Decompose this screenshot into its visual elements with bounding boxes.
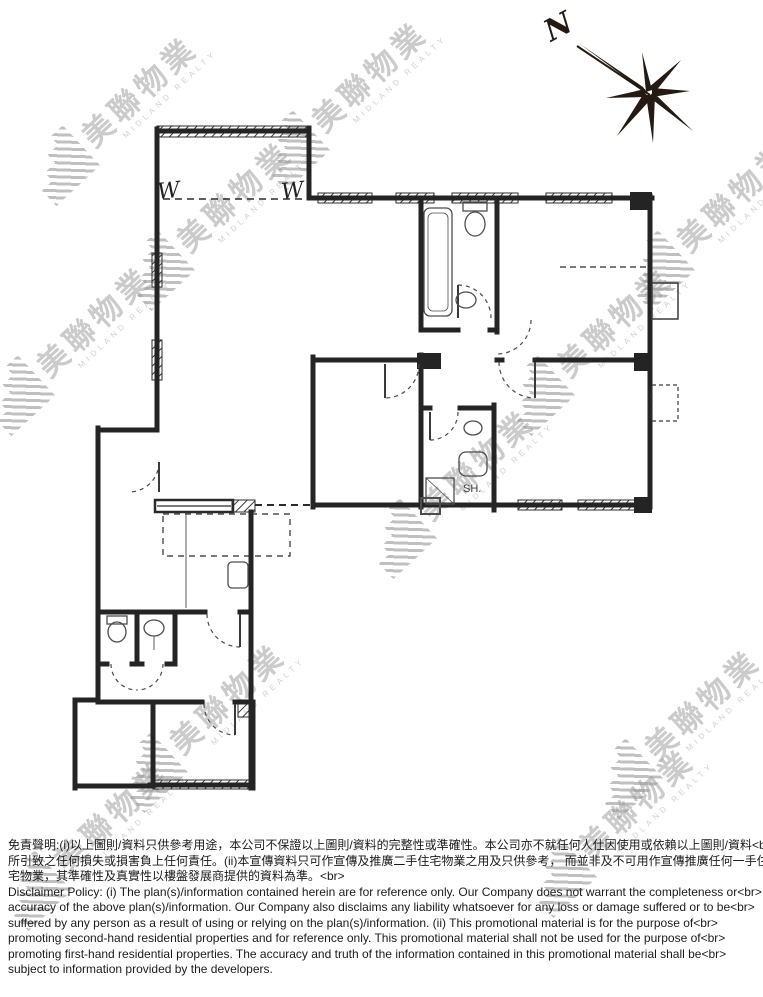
- bathtub-inner: [428, 213, 448, 311]
- corner-block-top-right: [630, 192, 652, 210]
- window-mark-w-right: W: [280, 177, 307, 204]
- floor-plan-page: 美聯物業MIDLAND REALTY 美聯物業MIDLAND REALTY 美聯…: [0, 0, 763, 997]
- compass-north-label: N: [537, 5, 580, 50]
- disclaimer-line-zh: 免責聲明:(i)以上圖則/資料只供參考用途，本公司不保證以上圖則/資料的完整性或…: [8, 838, 760, 854]
- door-arc-bottom-room: [204, 704, 235, 735]
- disclaimer-line-en: accuracy of the above plan(s)/informatio…: [8, 900, 760, 916]
- door-arc-kitchen: [129, 462, 159, 492]
- sink: [464, 421, 482, 435]
- door-arc-hall: [497, 320, 531, 354]
- lobby-dashed-outline: [163, 514, 290, 556]
- door-arc-bedroom-left: [385, 364, 419, 398]
- door-arc-maid-bath-left: [111, 664, 137, 690]
- walls: [75, 129, 652, 788]
- toilet-bowl: [108, 622, 126, 642]
- disclaimer-line-zh: 所引致之任何損失或損害負上任何責任。(ii)本宣傳資料只可作宣傳及推廣二手住宅物…: [8, 854, 760, 870]
- compass-north-icon: N: [537, 5, 693, 143]
- compass-ray-se: [649, 92, 693, 131]
- disclaimer-line-en: Disclaimer Policy: (i) The plan(s)/infor…: [8, 885, 760, 901]
- doors: [111, 285, 535, 735]
- outer-walls: [75, 129, 652, 788]
- disclaimer-line-en: suffered by any person as a result of us…: [8, 916, 760, 932]
- toilet-tank: [107, 616, 127, 624]
- door-arc-bath-top: [458, 285, 491, 318]
- compass-ray-w: [606, 89, 646, 98]
- corner-block-bottom-right: [634, 497, 652, 513]
- disclaimer-line-en: promoting first-hand residential propert…: [8, 947, 760, 963]
- window-mark-w-left: W: [156, 177, 183, 204]
- door-arc-wing-entry: [207, 614, 240, 647]
- interior-walls-wing: [98, 512, 253, 788]
- disclaimer-line-en: subject to information provided by the d…: [8, 962, 760, 978]
- disclaimer-line-zh: 宅物業，其準確性及真實性以樓盤發展商提供的資料為準。<br>: [8, 869, 760, 885]
- entrance-area: [155, 199, 648, 556]
- pillar-bedroom: [417, 353, 441, 369]
- ac-platform-bottom: [652, 385, 678, 421]
- disclaimer-line-en: promoting second-hand residential proper…: [8, 931, 760, 947]
- ac-platform-top: [652, 283, 678, 319]
- toilet-bowl: [465, 212, 485, 236]
- door-arc-bedroom-right: [499, 362, 535, 398]
- sink: [144, 620, 164, 636]
- window-segments: [152, 126, 640, 789]
- door-arc-bath-center: [430, 412, 458, 440]
- compass-ray-e: [652, 88, 690, 97]
- door-leaves: [159, 285, 535, 735]
- corner-block-mid-right: [634, 353, 652, 371]
- toilet-bowl: [459, 452, 487, 476]
- shower-label: SH.: [463, 483, 481, 495]
- interior-walls-main: [313, 198, 650, 510]
- kitchen-sink: [228, 562, 248, 588]
- ac-platforms: [652, 283, 678, 421]
- disclaimer-block: 免責聲明:(i)以上圖則/資料只供參考用途，本公司不保證以上圖則/資料的完整性或…: [8, 838, 760, 978]
- compass-ray-ne: [648, 60, 681, 92]
- door-arc-maid-bath-right: [137, 664, 163, 690]
- compass-ray-sw: [617, 93, 652, 136]
- compass-needle-line: [577, 46, 650, 95]
